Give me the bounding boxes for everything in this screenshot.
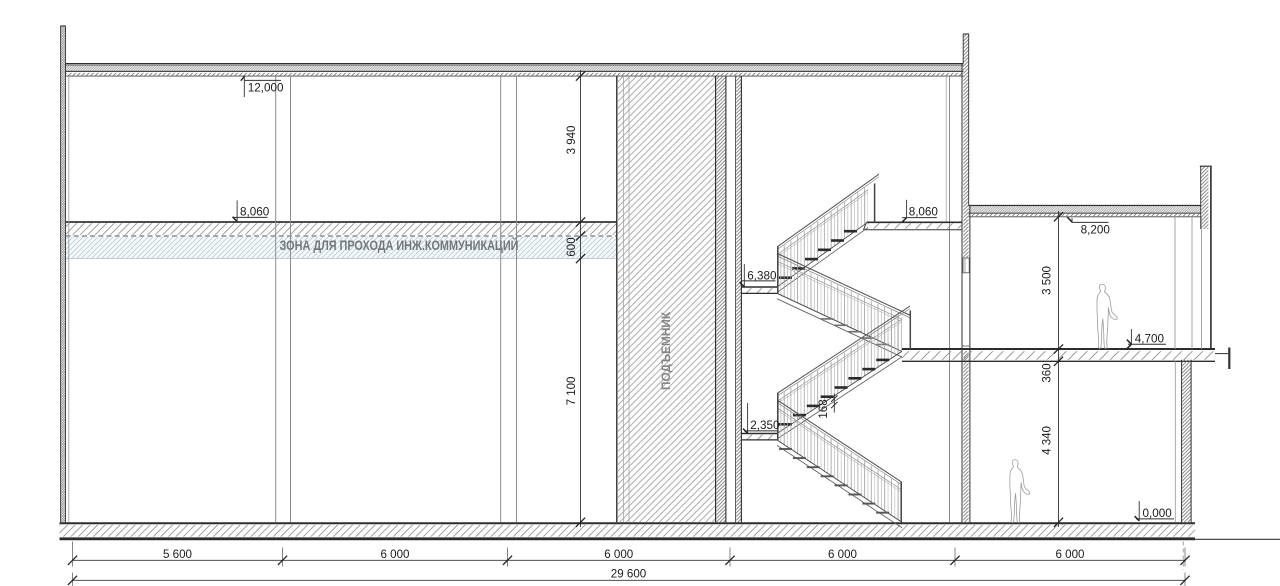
svg-text:12,000: 12,000 xyxy=(248,82,284,95)
svg-text:6 000: 6 000 xyxy=(604,548,633,561)
svg-text:360: 360 xyxy=(1041,363,1053,382)
svg-text:4,700: 4,700 xyxy=(1135,332,1165,345)
svg-text:6 000: 6 000 xyxy=(380,548,409,561)
svg-text:3 940: 3 940 xyxy=(566,126,578,155)
svg-text:ЗОНА ДЛЯ ПРОХОДА ИНЖ.КОММУНИКА: ЗОНА ДЛЯ ПРОХОДА ИНЖ.КОММУНИКАЦИЙ xyxy=(280,236,519,253)
svg-text:3 500: 3 500 xyxy=(1041,266,1053,295)
svg-text:6 000: 6 000 xyxy=(828,548,857,561)
svg-text:8,060: 8,060 xyxy=(909,206,939,219)
svg-text:0,000: 0,000 xyxy=(1143,507,1173,520)
svg-text:8,200: 8,200 xyxy=(1081,224,1111,237)
svg-text:6 000: 6 000 xyxy=(1055,548,1084,561)
svg-text:8,060: 8,060 xyxy=(240,206,270,219)
svg-text:5 600: 5 600 xyxy=(163,548,192,561)
svg-text:6,380: 6,380 xyxy=(747,269,777,282)
svg-text:600: 600 xyxy=(566,237,578,256)
svg-text:2,350: 2,350 xyxy=(750,419,780,432)
svg-text:ПОДЪЕМНИК: ПОДЪЕМНИК xyxy=(659,311,673,390)
svg-text:7 100: 7 100 xyxy=(566,377,578,406)
svg-text:168: 168 xyxy=(818,399,830,418)
svg-text:29 600: 29 600 xyxy=(611,568,646,581)
svg-text:4 340: 4 340 xyxy=(1041,426,1053,455)
